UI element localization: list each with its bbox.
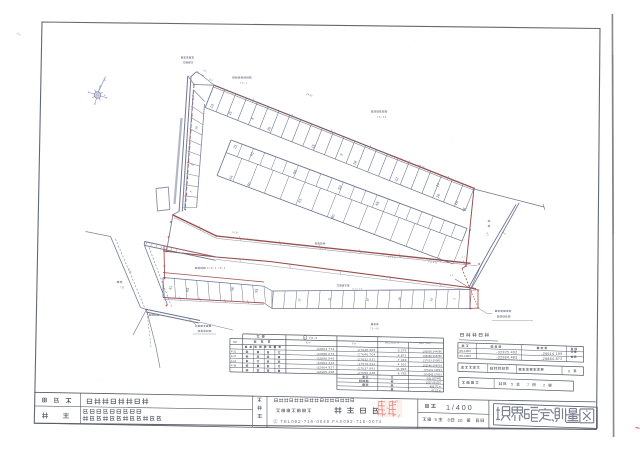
svg-text:-27646.704: -27646.704 (357, 353, 376, 357)
svg-text:7 6 - 4 8: 7 6 - 4 8 (370, 328, 379, 331)
svg-text:-4.932: -4.932 (397, 363, 407, 367)
svg-text:2: 2 (543, 384, 545, 388)
svg-text:-25884.872: -25884.872 (541, 357, 562, 361)
svg-text:05-1004: 05-1004 (460, 354, 472, 358)
svg-text:7 8 - 5: 7 8 - 5 (309, 336, 317, 340)
svg-text:Y n: Y n (352, 342, 357, 346)
svg-text:4-31: 4-31 (231, 351, 237, 354)
svg-text:-27648.905: -27648.905 (357, 348, 376, 352)
svg-text:455.76 m: 455.76 m (430, 385, 442, 389)
svg-text:-974545.07801: -974545.07801 (423, 374, 442, 377)
svg-text:·: · (82, 410, 83, 414)
svg-text:5: 5 (511, 383, 513, 387)
svg-text:137033.090801: 137033.090801 (423, 360, 443, 363)
svg-text:-27556.438: -27556.438 (357, 371, 376, 375)
svg-text:4-38: 4-38 (231, 364, 237, 367)
svg-text:7 6 - 1: 7 6 - 1 (240, 82, 248, 85)
svg-text:7 6 - 4 6: 7 6 - 4 6 (377, 116, 387, 119)
svg-text:11.993: 11.993 (396, 367, 407, 371)
svg-text:-32864.772: -32864.772 (316, 347, 335, 351)
svg-text:NO.: NO. (233, 340, 238, 344)
svg-text:05-1003: 05-1003 (460, 349, 472, 353)
svg-text:-32904.343: -32904.343 (316, 361, 335, 365)
svg-text:-27570.511: -27570.511 (357, 362, 375, 366)
svg-text:-32896.045: -32896.045 (316, 356, 335, 360)
svg-text:14.30: 14.30 (232, 231, 239, 235)
svg-text:-32888.073: -32888.073 (316, 352, 335, 356)
svg-text:7 B: 7 B (120, 286, 124, 290)
svg-text:168086.095080: 168086.095080 (423, 355, 443, 358)
svg-text:4-14: 4-14 (231, 360, 237, 363)
svg-text:17-4-1 2 8: 17-4-1 2 8 (352, 289, 363, 291)
svg-text:(Xn+1 - Xn-1): (Xn+1 - Xn-1) (419, 343, 431, 345)
svg-text:-32925.492: -32925.492 (496, 350, 517, 354)
svg-text:1527.551116: 1527.551116 (426, 381, 442, 385)
svg-text:㊤ TEL092-716-0048 FAX092-716-: ㊤ TEL092-716-0048 FAX092-716-0074 (273, 418, 382, 425)
svg-text:-27632.931: -27632.931 (357, 357, 376, 361)
svg-text:-6.782: -6.782 (397, 372, 407, 376)
svg-text:190806.544086: 190806.544086 (423, 351, 443, 354)
svg-text:-976161.00801: -976161.00801 (423, 369, 442, 372)
svg-text:-32905.498: -32905.498 (316, 370, 335, 374)
svg-text:7: 7 (527, 383, 529, 387)
svg-text:-25914.199: -25914.199 (541, 352, 562, 356)
svg-text:-27537.891: -27537.891 (357, 367, 376, 371)
svg-text:-32984.483: -32984.483 (496, 356, 517, 360)
svg-text:152086.098003: 152086.098003 (423, 364, 443, 367)
svg-text:II: II (568, 370, 570, 374)
svg-text:X n: X n (306, 341, 311, 345)
svg-text:(Xn+1-Xn-1) Yn: (Xn+1-Xn-1) Yn (385, 342, 399, 344)
svg-text:1/400: 1/400 (446, 403, 474, 412)
svg-text:-0.275: -0.275 (397, 349, 407, 353)
svg-text:-4.871: -4.871 (397, 353, 407, 357)
svg-text:20: 20 (458, 418, 463, 423)
svg-text:7 6 - 2: 7 6 - 2 (319, 247, 327, 250)
svg-text:8 7 B - 4 , 7 B - 8: 8 7 B - 4 , 7 B - 8 (207, 267, 226, 270)
svg-text:47.15 m: 47.15 m (431, 388, 441, 392)
svg-text:·: · (82, 417, 83, 421)
svg-text:4-37: 4-37 (231, 355, 237, 358)
svg-text:-32904.927: -32904.927 (316, 366, 335, 370)
svg-text:-911.027445: -911.027445 (426, 377, 441, 381)
svg-text:-7.349: -7.349 (397, 358, 407, 362)
